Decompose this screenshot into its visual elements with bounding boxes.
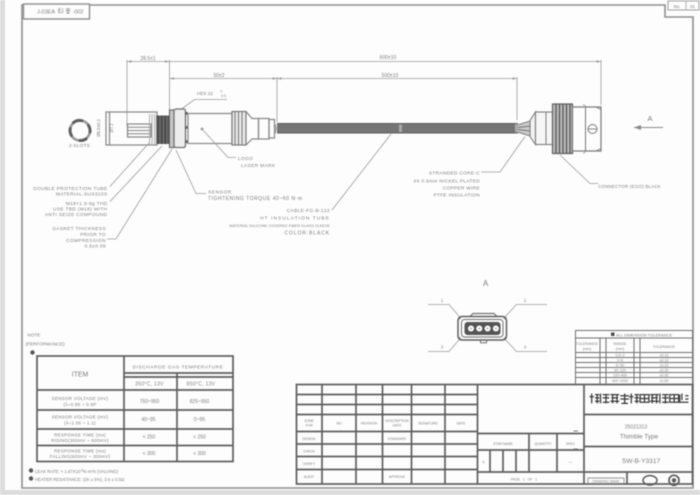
svg-text:No.: No. bbox=[673, 4, 680, 9]
svg-text:J-03EA: J-03EA bbox=[37, 10, 55, 16]
svg-text:-002: -002 bbox=[72, 10, 83, 16]
svg-text:VERIFY: VERIFY bbox=[303, 462, 316, 466]
svg-text:SENSOR VOLTAGE (mV): SENSOR VOLTAGE (mV) bbox=[52, 396, 109, 401]
svg-text:0.8±0.05: 0.8±0.05 bbox=[85, 244, 106, 250]
svg-text:6~30: 6~30 bbox=[616, 364, 624, 368]
svg-text:HEX 22: HEX 22 bbox=[197, 91, 213, 96]
svg-text:SENSOR VOLTAGE (mV): SENSOR VOLTAGE (mV) bbox=[52, 415, 109, 420]
svg-text:SENSOR: SENSOR bbox=[208, 190, 232, 196]
svg-text:GASKET THICKNESS: GASKET THICKNESS bbox=[52, 226, 106, 232]
svg-text:COLOR:BLACK: COLOR:BLACK bbox=[285, 231, 330, 237]
svg-text:RISING(300mV ~ 600mV): RISING(300mV ~ 600mV) bbox=[51, 438, 109, 443]
svg-text:±0.30: ±0.30 bbox=[660, 369, 669, 373]
svg-text:LEAK RATE: < 1.67X10-6N·m³/s (: LEAK RATE: < 1.67X10-6N·m³/s (VALVING) bbox=[35, 468, 119, 474]
svg-text:A: A bbox=[647, 114, 652, 123]
svg-text:500±10: 500±10 bbox=[382, 73, 399, 79]
svg-text:STRANDED CORE-C: STRANDED CORE-C bbox=[429, 171, 480, 177]
svg-text:PRIOR TO: PRIOR TO bbox=[80, 232, 106, 238]
svg-text:CHECK: CHECK bbox=[303, 450, 316, 454]
svg-text:28.5±1: 28.5±1 bbox=[140, 56, 155, 62]
svg-text:< 300: < 300 bbox=[143, 451, 156, 457]
svg-text:APPROVE: APPROVE bbox=[389, 475, 406, 479]
svg-text:±0.50: ±0.50 bbox=[660, 374, 669, 378]
svg-text:0.5~3: 0.5~3 bbox=[615, 354, 624, 358]
svg-text:RESPONSE TIME (ms): RESPONSE TIME (ms) bbox=[54, 449, 106, 454]
svg-text:SYM: SYM bbox=[305, 424, 313, 428]
svg-text:DATE: DATE bbox=[457, 422, 467, 426]
svg-text:Ø8.5±0.2: Ø8.5±0.2 bbox=[96, 118, 101, 137]
svg-text:DESIGN: DESIGN bbox=[303, 437, 317, 441]
svg-text:ANTI SEIZE COMPOUND: ANTI SEIZE COMPOUND bbox=[45, 212, 108, 218]
svg-text:STANDARD: STANDARD bbox=[388, 437, 407, 441]
svg-text:HEATER RESISTANCE: (2K ± 5%),: HEATER RESISTANCE: (2K ± 5%), 3.6 ± 0.5Ω bbox=[35, 477, 125, 482]
svg-text:MATERIAL:SILICONE COVERED FIBE: MATERIAL:SILICONE COVERED FIBER GLASS SL… bbox=[229, 224, 330, 228]
svg-text:TIGHTENING TORQUE 40~60 N·m: TIGHTENING TORQUE 40~60 N·m bbox=[208, 196, 303, 202]
svg-text:(PERFORMANCE):: (PERFORMANCE): bbox=[26, 342, 66, 347]
svg-text:A: A bbox=[483, 279, 489, 288]
svg-text:PAGE 1 OF 1: PAGE 1 OF 1 bbox=[511, 478, 537, 482]
svg-text:COPPER WIRE: COPPER WIRE bbox=[443, 186, 480, 192]
svg-text:TOLERANCE: TOLERANCE bbox=[653, 345, 676, 349]
svg-text:120~400: 120~400 bbox=[613, 374, 627, 378]
svg-text:LASER MARK: LASER MARK bbox=[241, 163, 276, 169]
svg-text:±0.80: ±0.80 bbox=[660, 379, 669, 383]
svg-text:NOTE: NOTE bbox=[28, 333, 41, 338]
svg-text:3~6: 3~6 bbox=[617, 359, 623, 363]
svg-text:(mm): (mm) bbox=[583, 347, 591, 351]
svg-text:STAR NAME: STAR NAME bbox=[493, 442, 513, 446]
svg-text:RANGE: RANGE bbox=[614, 342, 627, 346]
svg-text:REVISION: REVISION bbox=[361, 422, 378, 426]
svg-text:(λ=1.05 ~ 1.1): (λ=1.05 ~ 1.1) bbox=[64, 421, 96, 426]
svg-text:±0.10: ±0.10 bbox=[660, 359, 669, 363]
svg-text:±0.10: ±0.10 bbox=[660, 354, 669, 358]
svg-text:PTFE INSULATION: PTFE INSULATION bbox=[433, 193, 480, 199]
svg-text:USE TBD (M18) WITH: USE TBD (M18) WITH bbox=[53, 206, 108, 212]
svg-text:HT INSULATION TUBE: HT INSULATION TUBE bbox=[260, 216, 330, 222]
svg-text:400~1000: 400~1000 bbox=[612, 379, 628, 383]
svg-text:25021313: 25021313 bbox=[625, 425, 647, 431]
svg-text:Thimble Type: Thimble Type bbox=[620, 434, 659, 441]
svg-text:NO: NO bbox=[336, 422, 341, 426]
svg-text:(mm): (mm) bbox=[616, 347, 624, 351]
svg-text:MATERIAL:SUS310S: MATERIAL:SUS310S bbox=[56, 191, 108, 197]
svg-text:M18×1.5-6g THD: M18×1.5-6g THD bbox=[66, 201, 108, 207]
svg-text:QUANTITY: QUANTITY bbox=[534, 442, 552, 446]
svg-text:0: 0 bbox=[221, 90, 223, 94]
svg-text:30~120: 30~120 bbox=[614, 369, 626, 373]
svg-text:750~950: 750~950 bbox=[140, 399, 160, 405]
svg-text:< 300: < 300 bbox=[193, 451, 206, 457]
svg-text:AUDIT: AUDIT bbox=[304, 475, 314, 479]
svg-text:01: 01 bbox=[690, 4, 696, 9]
svg-text:DRAWING NAME: DRAWING NAME bbox=[593, 480, 621, 484]
svg-text:ALL DIMENSION TOLERANCE: ALL DIMENSION TOLERANCE bbox=[616, 333, 672, 338]
svg-text:< 250: < 250 bbox=[193, 435, 206, 441]
svg-text:SPEC: SPEC bbox=[566, 442, 576, 446]
svg-text:CABLE-FG-B-122: CABLE-FG-B-122 bbox=[287, 208, 330, 214]
svg-text:SIGNATURE: SIGNATURE bbox=[418, 422, 438, 426]
svg-text:DESCRIPTION: DESCRIPTION bbox=[385, 419, 409, 423]
svg-text:2-SLOTS: 2-SLOTS bbox=[69, 143, 90, 148]
svg-text:850°C, 13V: 850°C, 13V bbox=[187, 382, 216, 388]
svg-text:FALLING(600mV ~ 300mV): FALLING(600mV ~ 300mV) bbox=[50, 454, 111, 459]
svg-text:a: a bbox=[483, 460, 485, 464]
svg-text:825~950: 825~950 bbox=[190, 399, 210, 405]
svg-text:0~95: 0~95 bbox=[194, 417, 205, 423]
svg-text:ITEM: ITEM bbox=[72, 372, 89, 379]
svg-text:40~95: 40~95 bbox=[141, 417, 155, 423]
svg-text:-0.5: -0.5 bbox=[221, 94, 227, 98]
svg-text:CONNECTOR (EGO) BLACK: CONNECTOR (EGO) BLACK bbox=[598, 184, 661, 189]
svg-text:50±2: 50±2 bbox=[213, 73, 224, 79]
svg-text:RESPONSE TIME (ms): RESPONSE TIME (ms) bbox=[54, 433, 106, 438]
svg-text:< 250: < 250 bbox=[143, 435, 156, 441]
svg-text:±0.20: ±0.20 bbox=[660, 364, 669, 368]
svg-text:COMPRESSION: COMPRESSION bbox=[66, 238, 106, 244]
svg-text:ZONE: ZONE bbox=[304, 419, 314, 423]
svg-text:4X 0.5mm NICKEL PLATED: 4X 0.5mm NICKEL PLATED bbox=[413, 179, 480, 185]
svg-text:LOGO: LOGO bbox=[238, 156, 253, 162]
svg-text:DOUBLE PROTECTION TUBE: DOUBLE PROTECTION TUBE bbox=[33, 186, 107, 192]
svg-text:(λ=0.95 ~ 0.9P: (λ=0.95 ~ 0.9P bbox=[63, 402, 96, 407]
svg-text:DISCHARGE GAS TEMPERATURE: DISCHARGE GAS TEMPERATURE bbox=[133, 365, 224, 371]
svg-text:350°C, 13V: 350°C, 13V bbox=[135, 382, 164, 388]
svg-text:TOLERANCE: TOLERANCE bbox=[576, 342, 599, 346]
svg-text:DATE: DATE bbox=[393, 424, 403, 428]
svg-text:SW-B-Y3317: SW-B-Y3317 bbox=[622, 458, 661, 465]
svg-text:600±10: 600±10 bbox=[380, 55, 397, 61]
